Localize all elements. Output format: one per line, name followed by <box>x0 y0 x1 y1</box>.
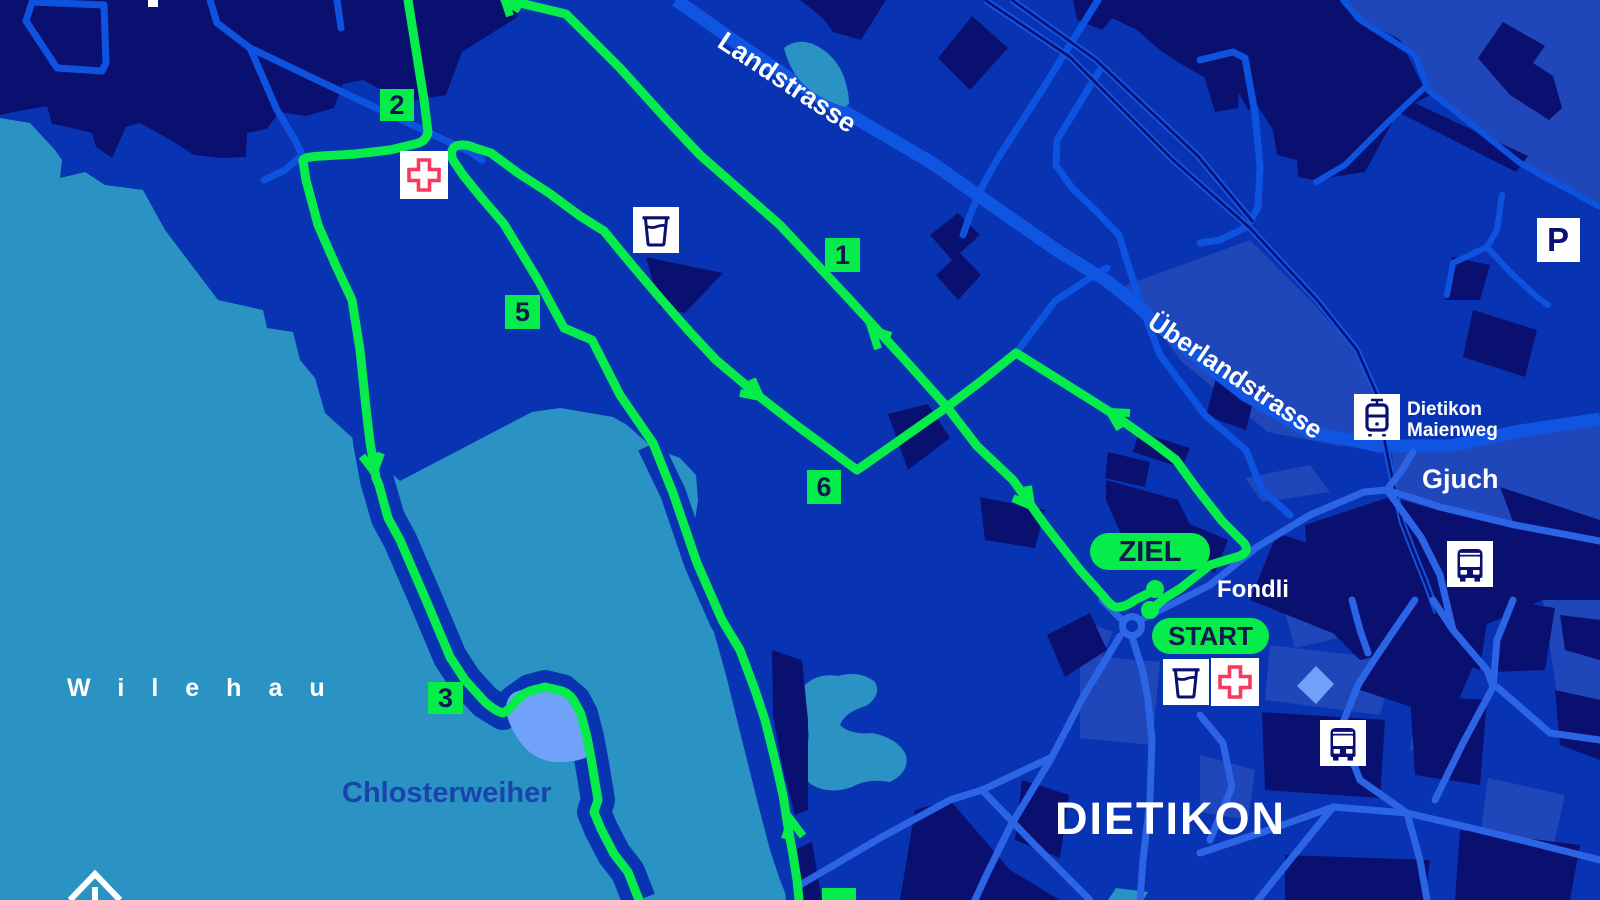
svg-text:2: 2 <box>389 90 404 120</box>
svg-text:Maienweg: Maienweg <box>1407 420 1498 441</box>
svg-text:P: P <box>1547 221 1569 258</box>
svg-text:Gjuch: Gjuch <box>1422 464 1499 494</box>
svg-text:3: 3 <box>438 683 453 713</box>
svg-text:ZIEL: ZIEL <box>1119 536 1182 568</box>
svg-text:Fondli: Fondli <box>1217 576 1289 603</box>
svg-text:5: 5 <box>515 297 530 327</box>
svg-text:DIETIKON: DIETIKON <box>1055 793 1286 844</box>
svg-text:START: START <box>1168 621 1253 651</box>
svg-text:Wilehau: Wilehau <box>67 674 352 702</box>
svg-text:Chlosterweiher: Chlosterweiher <box>342 777 552 809</box>
svg-text:6: 6 <box>816 472 831 502</box>
svg-text:Dietikon: Dietikon <box>1407 399 1482 420</box>
svg-text:1: 1 <box>835 240 850 270</box>
